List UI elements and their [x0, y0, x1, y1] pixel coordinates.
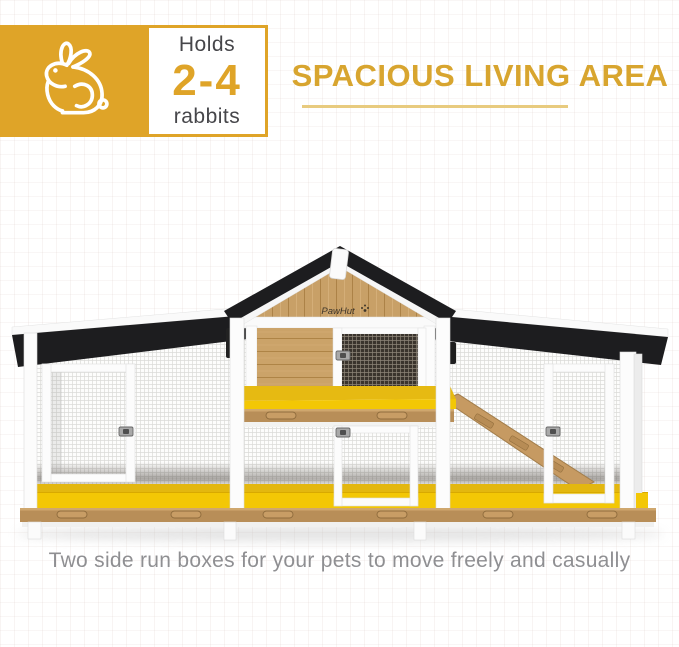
- house-wood-door: [257, 328, 333, 390]
- tray-pull: [171, 511, 201, 518]
- upper-tray-rail: [230, 409, 454, 427]
- rabbit-hutch-illustration: PawHut: [0, 238, 679, 550]
- house-door-latch: [336, 351, 350, 360]
- brand-logo: PawHut: [321, 306, 355, 317]
- holds-label: Holds: [179, 34, 235, 57]
- heading-underline: [302, 105, 568, 108]
- tray-pull: [377, 511, 407, 518]
- bottom-tray-rail: [20, 508, 656, 522]
- roof-cap: [329, 248, 349, 280]
- left-door-latch: [119, 427, 133, 436]
- right-door-latch: [546, 427, 560, 436]
- capacity-text-box: Holds 2-4 rabbits: [146, 25, 268, 137]
- caption-text: Two side run boxes for your pets to move…: [0, 549, 679, 573]
- capacity-value: 2-4: [172, 57, 242, 105]
- rabbits-label: rabbits: [174, 106, 241, 129]
- tray-pull: [587, 511, 617, 518]
- tray-pull: [266, 412, 296, 419]
- upper-yellow-tray: [234, 386, 456, 411]
- tray-pull: [377, 412, 407, 419]
- product-photo: PawHut: [0, 238, 679, 550]
- product-infographic: Holds 2-4 rabbits SPACIOUS LIVING AREA: [0, 0, 679, 647]
- tray-pull: [263, 511, 293, 518]
- tray-pull: [57, 511, 87, 518]
- center-door-latch: [336, 428, 350, 437]
- section-heading: SPACIOUS LIVING AREA: [290, 58, 670, 108]
- page-title: SPACIOUS LIVING AREA: [290, 58, 670, 94]
- tray-pull: [483, 511, 513, 518]
- rabbit-icon: [0, 25, 146, 137]
- ground-shadow: [15, 526, 665, 542]
- main-hutch-house: PawHut: [224, 246, 456, 392]
- capacity-badge: Holds 2-4 rabbits: [0, 25, 268, 137]
- house-mesh-door: [342, 334, 418, 390]
